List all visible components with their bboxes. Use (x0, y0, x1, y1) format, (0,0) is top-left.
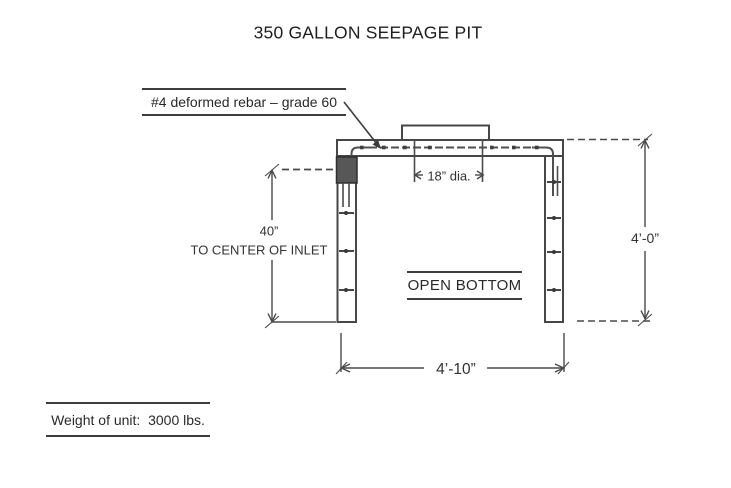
opening-dia-label: 18” dia. (427, 169, 470, 184)
weight-note: Weight of unit: 3000 lbs. (46, 402, 210, 437)
open-bottom-text: OPEN BOTTOM (408, 277, 522, 294)
inlet-height-caption: TO CENTER OF INLET (191, 243, 328, 258)
seepage-pit-drawing-sheet: 350 GALLON SEEPAGE PIT #4 deformed rebar… (0, 0, 731, 488)
overall-width-label: 4’-10” (436, 361, 476, 379)
open-bottom-note: OPEN BOTTOM (407, 271, 522, 300)
rebar-callout: #4 deformed rebar – grade 60 (142, 88, 346, 116)
overall-height-label: 4’-0” (631, 230, 659, 246)
pit-lid (402, 126, 489, 141)
drawing-title: 350 GALLON SEEPAGE PIT (254, 23, 483, 44)
rebar-callout-text: #4 deformed rebar – grade 60 (151, 94, 337, 110)
inlet-height-value: 40” (260, 224, 279, 239)
weight-note-text: Weight of unit: 3000 lbs. (51, 412, 205, 428)
